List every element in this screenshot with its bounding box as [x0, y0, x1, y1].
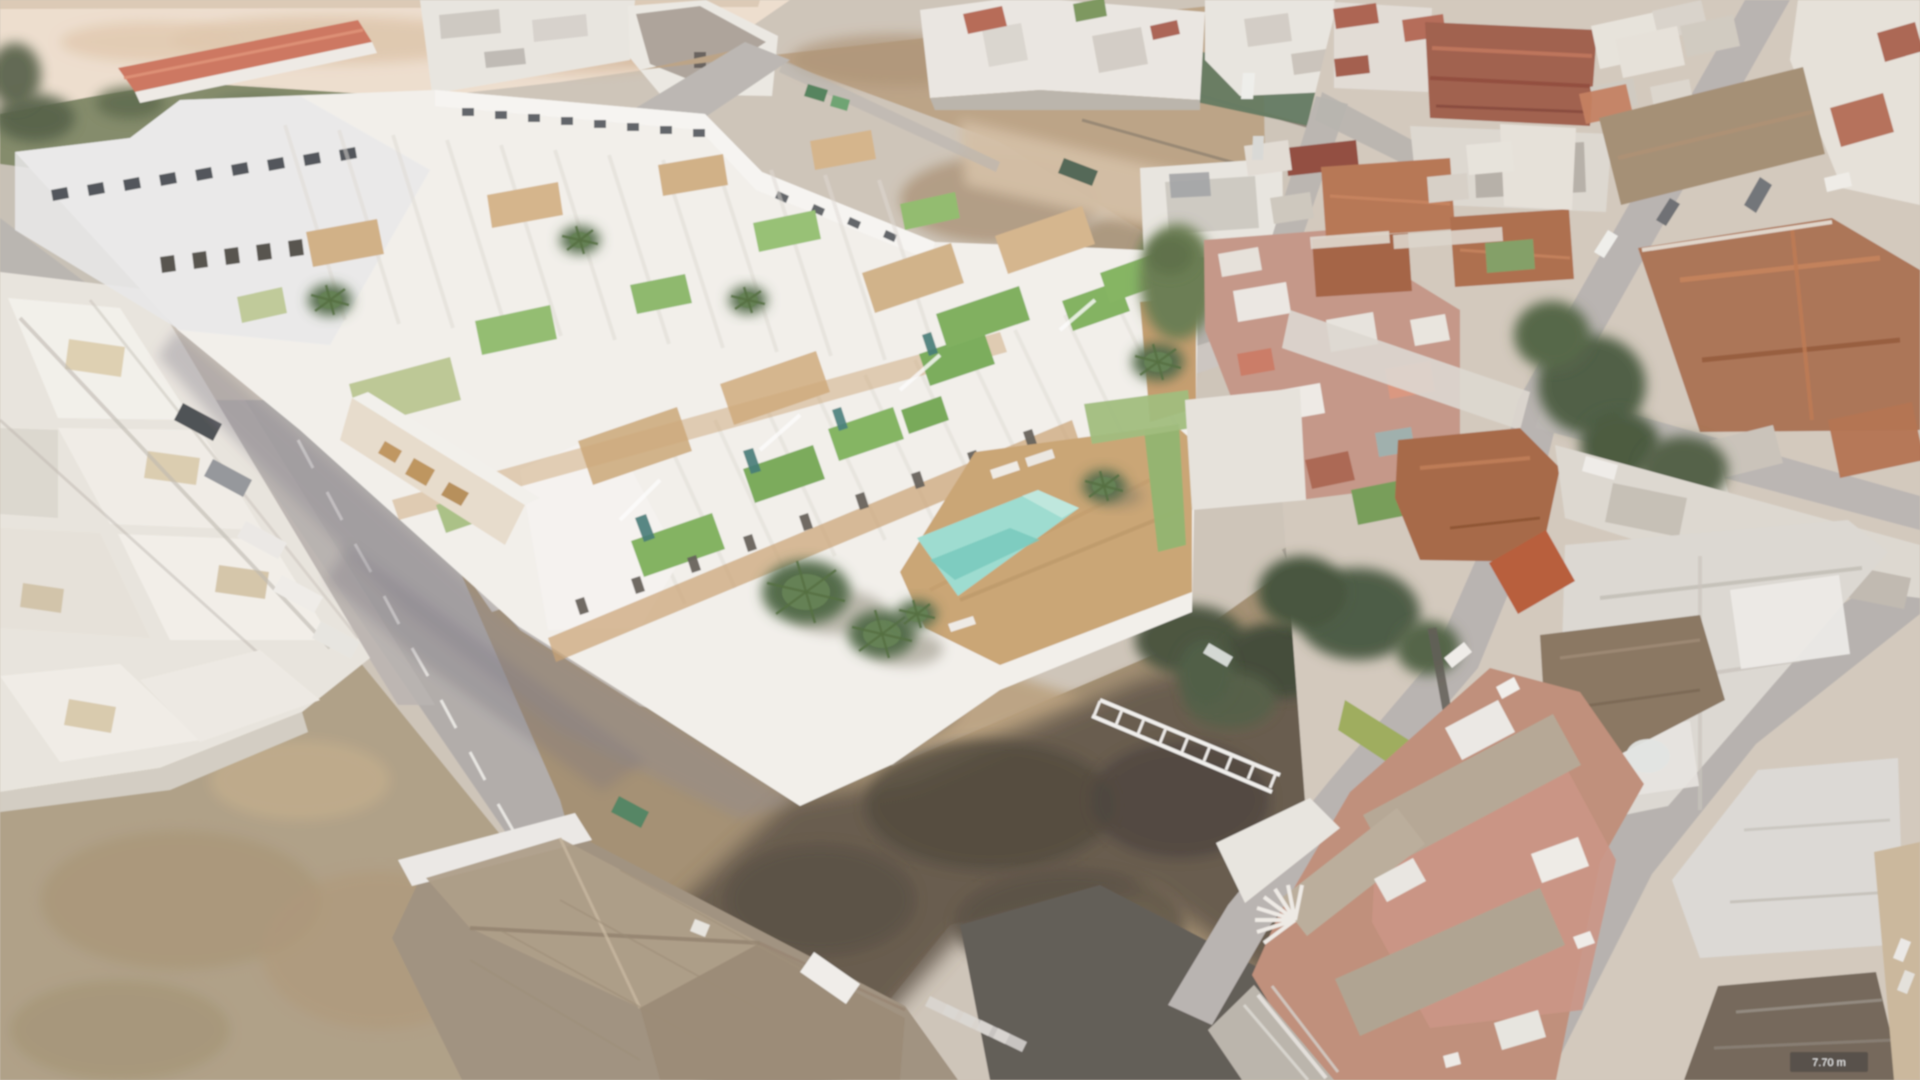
svg-text:7.70 m: 7.70 m: [1812, 1057, 1846, 1069]
